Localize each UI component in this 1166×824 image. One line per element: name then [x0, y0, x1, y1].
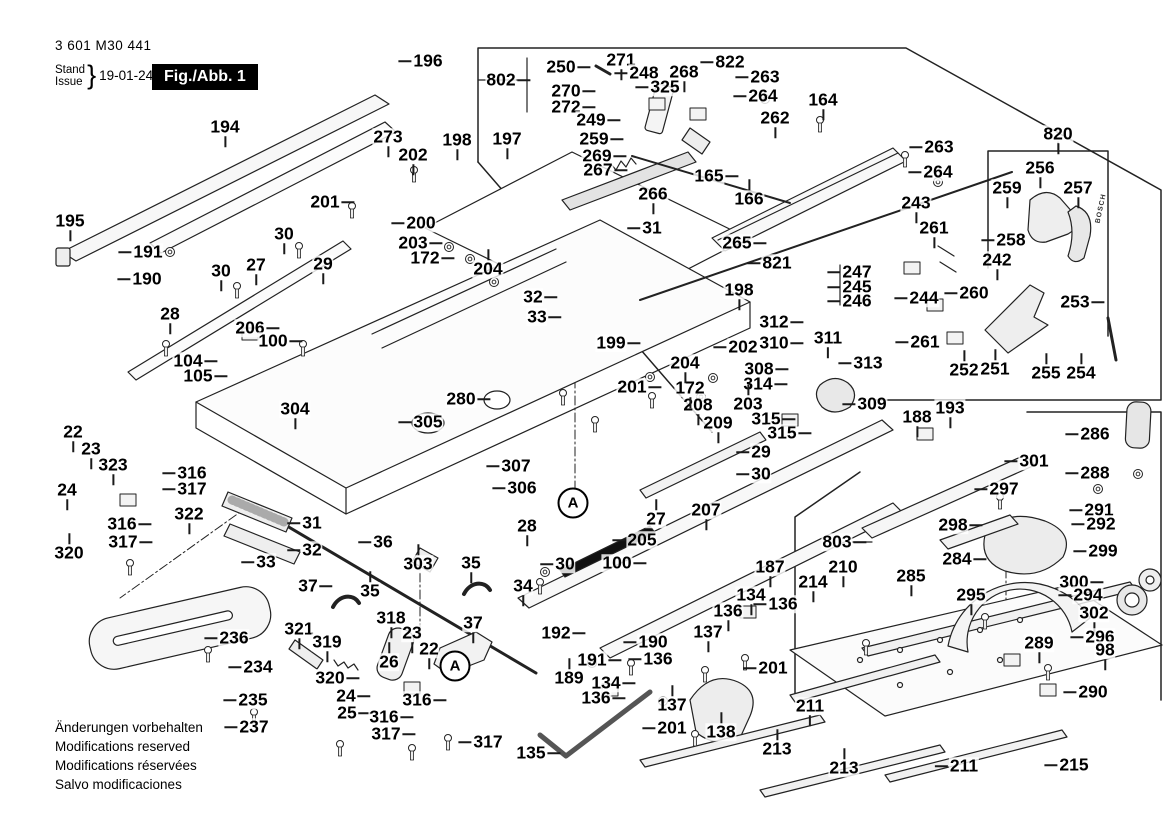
part-label-29: 29	[750, 443, 771, 461]
leader-line	[994, 349, 996, 360]
part-label-292: 292	[1085, 515, 1116, 533]
part-label-31: 31	[641, 219, 662, 237]
leader-line	[754, 242, 767, 244]
part-label-306: 306	[506, 479, 537, 497]
leader-line	[700, 61, 713, 63]
part-label-297: 297	[988, 480, 1019, 498]
leader-line	[287, 549, 300, 551]
leader-line	[1077, 197, 1079, 208]
part-label-98: 98	[1094, 641, 1115, 659]
legal-note-line: Modifications reserved	[55, 737, 203, 756]
part-label-244: 244	[908, 289, 939, 307]
part-label-317: 317	[370, 725, 401, 743]
issue-block: Stand Issue } 19-01-24	[55, 60, 153, 91]
part-label-209: 209	[702, 414, 733, 432]
part-label-252: 252	[948, 361, 979, 379]
brace-glyph: }	[87, 60, 96, 91]
leader-line	[684, 372, 686, 383]
part-label-263: 263	[749, 68, 780, 86]
part-label-298: 298	[937, 516, 968, 534]
leader-line	[981, 239, 994, 241]
part-label-33: 33	[526, 308, 547, 326]
part-label-28: 28	[159, 305, 180, 323]
part-label-211: 211	[949, 757, 979, 775]
part-label-100: 100	[601, 554, 632, 572]
leader-line	[1044, 764, 1057, 766]
part-label-214: 214	[797, 573, 828, 591]
leader-line	[895, 341, 908, 343]
part-label-320: 320	[314, 669, 345, 687]
part-label-190: 190	[131, 270, 162, 288]
part-label-33: 33	[255, 553, 276, 571]
leader-line	[812, 591, 814, 602]
leader-line	[162, 472, 175, 474]
part-label-285: 285	[895, 567, 926, 585]
part-label-262: 262	[759, 109, 790, 127]
part-label-317: 317	[176, 480, 207, 498]
leader-line	[1006, 197, 1008, 208]
leader-line	[970, 524, 983, 526]
part-label-30: 30	[750, 465, 771, 483]
part-label-27: 27	[645, 510, 666, 528]
leader-line	[1091, 581, 1104, 583]
issue-date: 19-01-24	[99, 68, 153, 83]
leader-line	[655, 499, 657, 510]
leader-line	[578, 66, 591, 68]
leader-line	[963, 350, 965, 361]
leader-line	[944, 292, 957, 294]
part-label-192: 192	[540, 624, 571, 642]
leader-line	[72, 441, 74, 452]
leader-line	[720, 712, 722, 723]
leader-line	[949, 417, 951, 428]
part-label-256: 256	[1024, 159, 1055, 177]
model-number: 3 601 M30 441	[55, 38, 153, 53]
part-label-251: 251	[979, 360, 1010, 378]
leader-line	[117, 278, 130, 280]
leader-line	[573, 632, 586, 634]
leader-line	[827, 347, 829, 358]
leader-line	[220, 280, 222, 291]
leader-line	[620, 69, 622, 80]
leader-line	[287, 522, 300, 524]
leader-line	[753, 603, 766, 605]
leader-line	[894, 297, 907, 299]
leader-line	[294, 418, 296, 429]
legal-note-line: Änderungen vorbehalten	[55, 718, 203, 737]
part-label-193: 193	[934, 399, 965, 417]
leader-line	[358, 695, 371, 697]
part-label-312: 312	[758, 313, 789, 331]
leader-line	[1104, 659, 1106, 670]
leader-line	[486, 465, 499, 467]
leader-line	[224, 136, 226, 147]
part-label-195: 195	[54, 212, 85, 230]
leader-line	[733, 95, 746, 97]
leader-line	[750, 604, 752, 615]
leader-line	[842, 576, 844, 587]
part-label-210: 210	[827, 558, 858, 576]
leader-line	[540, 563, 553, 565]
part-label-289: 289	[1023, 634, 1054, 652]
leader-line	[506, 148, 508, 159]
leader-line	[391, 222, 404, 224]
part-label-202: 202	[727, 338, 758, 356]
legal-note-line: Salvo modificaciones	[55, 775, 203, 794]
leader-line	[290, 340, 303, 342]
leader-line	[1045, 353, 1047, 364]
leader-line	[1080, 353, 1082, 364]
leader-line	[1065, 433, 1078, 435]
part-label-261: 261	[918, 219, 949, 237]
detail-marker-A: A	[440, 651, 471, 682]
brand-text: BOSCH	[1095, 193, 1108, 224]
leader-line	[736, 473, 749, 475]
part-label-207: 207	[690, 501, 721, 519]
leader-line	[472, 632, 474, 643]
leader-line	[215, 375, 228, 377]
part-label-302: 302	[1078, 604, 1109, 622]
part-label-325: 325	[649, 78, 680, 96]
stand-label: Stand	[55, 64, 85, 76]
leader-line	[411, 642, 413, 653]
leader-line	[162, 488, 175, 490]
leader-line	[487, 249, 489, 260]
leader-line	[90, 458, 92, 469]
part-label-263: 263	[923, 138, 954, 156]
leader-line	[634, 562, 647, 564]
part-label-323: 323	[97, 456, 128, 474]
leader-line	[112, 474, 114, 485]
leader-line	[1004, 460, 1017, 462]
leader-line	[623, 641, 636, 643]
part-label-25: 25	[336, 704, 357, 722]
leader-line	[549, 316, 562, 318]
leader-line	[470, 572, 472, 583]
leader-line	[908, 171, 921, 173]
part-label-30: 30	[554, 555, 575, 573]
leader-line	[613, 697, 626, 699]
part-label-237: 237	[238, 718, 269, 736]
part-label-136: 136	[767, 595, 798, 613]
part-label-822: 822	[714, 53, 745, 71]
leader-line	[747, 262, 760, 264]
leader-line	[223, 699, 236, 701]
part-label-187: 187	[754, 558, 785, 576]
leader-line	[910, 585, 912, 596]
leader-line	[743, 667, 756, 669]
leader-line	[390, 627, 392, 638]
part-label-259: 259	[991, 179, 1022, 197]
part-label-30: 30	[273, 225, 294, 243]
leader-line	[205, 360, 218, 362]
leader-line	[518, 79, 531, 81]
leader-line	[456, 149, 458, 160]
part-label-311: 311	[813, 329, 843, 347]
part-label-319: 319	[311, 633, 342, 651]
part-label-303: 303	[402, 555, 433, 573]
part-label-136: 136	[580, 689, 611, 707]
leader-line	[398, 421, 411, 423]
leader-line	[1038, 652, 1040, 663]
leader-line	[609, 659, 622, 661]
leader-line	[705, 519, 707, 530]
part-label-198: 198	[723, 281, 754, 299]
part-label-313: 313	[852, 354, 883, 372]
part-label-188: 188	[901, 408, 932, 426]
leader-line	[458, 741, 471, 743]
part-label-29: 29	[312, 255, 333, 273]
leader-line	[412, 164, 414, 175]
detail-marker-A: A	[558, 488, 589, 519]
part-label-32: 32	[301, 541, 322, 559]
part-label-294: 294	[1072, 586, 1103, 604]
part-label-249: 249	[575, 111, 606, 129]
part-label-260: 260	[958, 284, 989, 302]
part-label-261: 261	[909, 333, 940, 351]
leader-line	[1063, 691, 1076, 693]
leader-line	[322, 273, 324, 284]
leader-line	[727, 620, 729, 631]
part-label-30: 30	[210, 262, 231, 280]
leader-line	[791, 342, 804, 344]
leader-line	[935, 765, 948, 767]
leader-line	[615, 169, 628, 171]
leader-line	[736, 451, 749, 453]
part-label-208: 208	[682, 396, 713, 414]
leader-line	[583, 90, 596, 92]
part-label-36: 36	[372, 533, 393, 551]
leader-line	[776, 729, 778, 740]
issue-label: Issue	[55, 76, 85, 88]
leader-line	[783, 418, 796, 420]
part-label-201: 201	[616, 378, 647, 396]
leader-line	[713, 346, 726, 348]
part-label-820: 820	[1042, 125, 1073, 143]
part-label-205: 205	[626, 531, 657, 549]
leader-line	[347, 677, 360, 679]
part-label-34: 34	[512, 577, 533, 595]
part-label-301: 301	[1018, 452, 1049, 470]
leader-line	[799, 432, 812, 434]
part-label-215: 215	[1058, 756, 1089, 774]
part-label-246: 246	[841, 292, 872, 310]
part-label-191: 191	[576, 651, 607, 669]
part-label-317: 317	[472, 733, 503, 751]
part-label-299: 299	[1087, 542, 1118, 560]
part-label-280: 280	[445, 390, 476, 408]
part-label-310: 310	[758, 334, 789, 352]
part-label-253: 253	[1059, 293, 1090, 311]
leader-line	[842, 403, 855, 405]
leader-line	[224, 726, 237, 728]
leader-line	[683, 81, 685, 92]
part-label-194: 194	[209, 118, 240, 136]
part-label-290: 290	[1077, 683, 1108, 701]
part-label-321: 321	[283, 620, 314, 638]
part-label-250: 250	[545, 58, 576, 76]
leader-line	[1057, 143, 1059, 154]
leader-line	[909, 146, 922, 148]
part-label-172: 172	[409, 249, 440, 267]
part-label-255: 255	[1030, 364, 1061, 382]
leader-line	[726, 175, 739, 177]
part-label-26: 26	[378, 653, 399, 671]
leader-line	[717, 432, 719, 443]
leader-line	[320, 585, 333, 587]
part-label-136: 136	[712, 602, 743, 620]
leader-line	[66, 499, 68, 510]
leader-line	[545, 296, 558, 298]
part-label-236: 236	[218, 629, 249, 647]
leader-line	[298, 638, 300, 649]
leader-line	[68, 533, 70, 544]
leader-line	[791, 321, 804, 323]
leader-line	[933, 237, 935, 248]
leader-line	[612, 539, 625, 541]
leader-line	[255, 274, 257, 285]
leader-line	[283, 243, 285, 254]
leader-line	[916, 426, 918, 437]
leader-line	[417, 544, 419, 555]
leader-line	[434, 699, 447, 701]
part-label-309: 309	[856, 395, 887, 413]
part-label-22: 22	[418, 640, 439, 658]
part-label-265: 265	[721, 234, 752, 252]
leader-line	[735, 76, 748, 78]
leader-line	[228, 666, 241, 668]
leader-line	[738, 299, 740, 310]
part-label-322: 322	[173, 505, 204, 523]
part-label-100: 100	[257, 332, 288, 350]
part-label-213: 213	[828, 759, 859, 777]
part-label-201: 201	[656, 719, 687, 737]
part-label-31: 31	[301, 514, 322, 532]
part-label-196: 196	[412, 52, 443, 70]
part-label-307: 307	[500, 457, 531, 475]
leader-line	[748, 179, 750, 190]
leader-line	[548, 752, 561, 754]
part-label-35: 35	[460, 554, 481, 572]
part-label-135: 135	[515, 744, 546, 762]
leader-line	[974, 558, 987, 560]
leader-line	[628, 342, 641, 344]
leader-line	[526, 535, 528, 546]
title-block: 3 601 M30 441 Stand Issue } 19-01-24	[55, 38, 153, 91]
part-label-199: 199	[595, 334, 626, 352]
leader-line	[809, 715, 811, 726]
legal-note: Änderungen vorbehaltenModifications rese…	[55, 718, 203, 794]
part-label-24: 24	[56, 481, 77, 499]
part-label-213: 213	[761, 740, 792, 758]
part-label-273: 273	[372, 128, 403, 146]
leader-line	[442, 257, 455, 259]
part-label-189: 189	[553, 669, 584, 687]
leader-line	[843, 748, 845, 759]
leader-line	[747, 384, 749, 395]
leader-line	[775, 383, 788, 385]
leader-line	[403, 733, 416, 735]
leader-line	[652, 203, 654, 214]
leader-line	[689, 397, 691, 408]
leader-line	[188, 523, 190, 534]
leader-line	[1069, 509, 1082, 511]
leader-line	[204, 637, 217, 639]
leader-line	[568, 658, 570, 669]
part-label-266: 266	[637, 185, 668, 203]
leader-line	[1039, 177, 1041, 188]
part-label-204: 204	[669, 354, 700, 372]
leader-line	[358, 541, 371, 543]
part-label-211: 211	[795, 697, 825, 715]
leader-line	[139, 523, 152, 525]
part-label-197: 197	[491, 130, 522, 148]
leader-line	[707, 641, 709, 652]
part-label-201: 201	[757, 659, 788, 677]
leader-line	[671, 685, 673, 696]
leader-line	[430, 242, 443, 244]
part-label-105: 105	[182, 367, 213, 385]
part-label-235: 235	[237, 691, 268, 709]
leader-line	[628, 658, 641, 660]
part-label-304: 304	[279, 400, 310, 418]
part-label-305: 305	[412, 413, 443, 431]
part-label-267: 267	[582, 161, 613, 179]
leader-line	[614, 155, 627, 157]
leader-line	[1065, 472, 1078, 474]
leader-line	[854, 541, 867, 543]
leader-line	[827, 271, 840, 273]
leader-line	[611, 138, 624, 140]
part-label-202: 202	[397, 146, 428, 164]
leader-line	[1070, 636, 1083, 638]
leader-line	[492, 487, 505, 489]
leader-line	[398, 60, 411, 62]
part-label-234: 234	[242, 658, 273, 676]
leader-line	[1058, 594, 1071, 596]
leader-line	[915, 212, 917, 223]
leader-line	[827, 300, 840, 302]
leader-line	[1071, 523, 1084, 525]
parts-diagram-page: 3 601 M30 441 Stand Issue } 19-01-24 Fig…	[0, 0, 1166, 824]
part-label-242: 242	[981, 251, 1012, 269]
part-label-803: 803	[821, 533, 852, 551]
leader-line	[478, 398, 491, 400]
leader-line	[401, 716, 414, 718]
leader-line	[996, 269, 998, 280]
part-label-821: 821	[761, 254, 792, 272]
leader-line	[970, 604, 972, 615]
part-label-164: 164	[807, 91, 838, 109]
leader-line	[827, 286, 840, 288]
leader-line	[140, 541, 153, 543]
leader-line	[838, 362, 851, 364]
leader-line	[428, 658, 430, 669]
part-label-320: 320	[53, 544, 84, 562]
part-label-137: 137	[656, 696, 687, 714]
leader-line	[267, 327, 280, 329]
leader-line	[974, 488, 987, 490]
part-label-264: 264	[922, 163, 953, 181]
part-label-28: 28	[516, 517, 537, 535]
part-label-295: 295	[955, 586, 986, 604]
leader-line	[614, 72, 627, 74]
leader-line	[522, 595, 524, 606]
leader-line	[769, 576, 771, 587]
figure-label: Fig./Abb. 1	[152, 64, 258, 90]
leader-line	[627, 227, 640, 229]
part-label-136: 136	[642, 650, 673, 668]
